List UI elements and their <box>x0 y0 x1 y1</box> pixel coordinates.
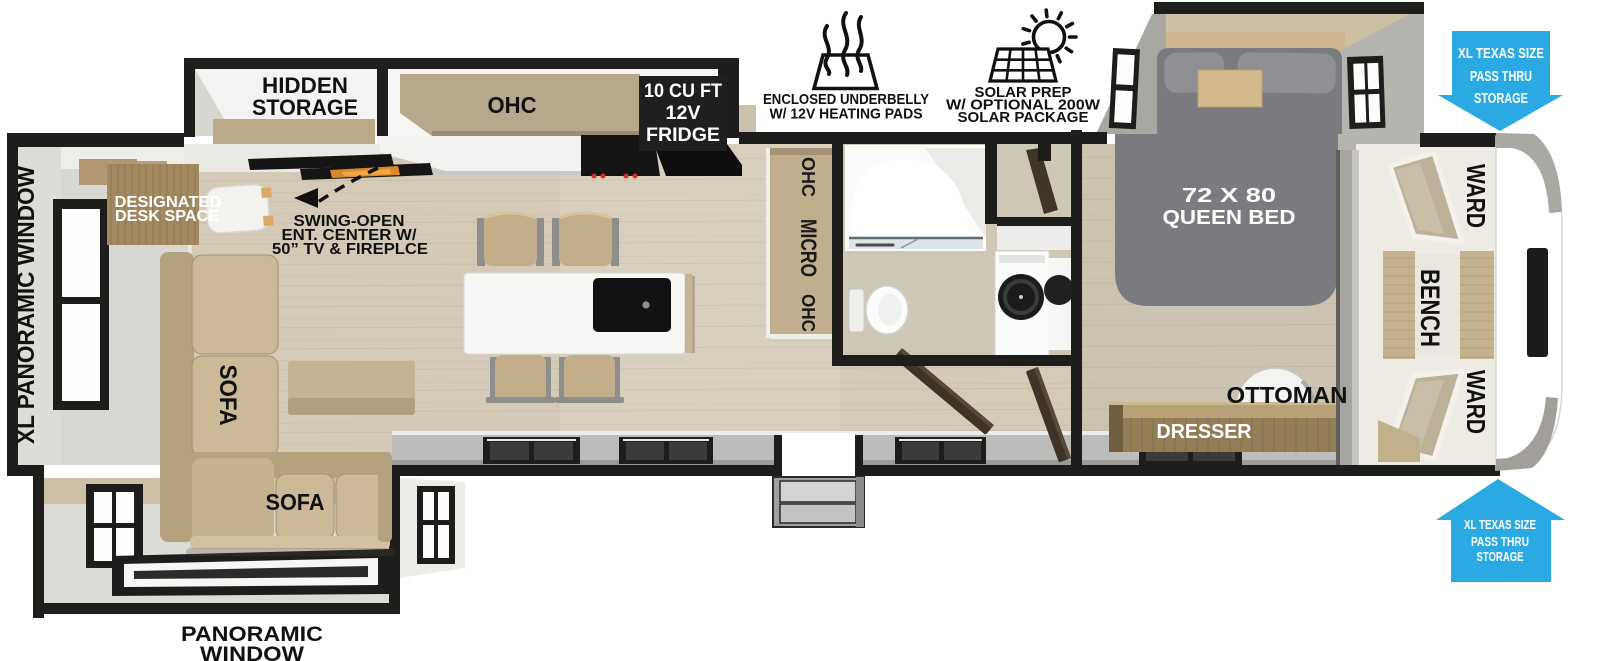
svg-text:PASS THRU: PASS THRU <box>1470 69 1532 85</box>
svg-text:WARD: WARD <box>1461 370 1491 434</box>
svg-text:DESK SPACE: DESK SPACE <box>115 208 219 225</box>
svg-text:XL TEXAS SIZE: XL TEXAS SIZE <box>1464 517 1536 532</box>
svg-text:PASS THRU: PASS THRU <box>1471 534 1529 549</box>
svg-text:XL PANORAMIC WINDOW: XL PANORAMIC WINDOW <box>13 166 40 444</box>
svg-text:WARD: WARD <box>1461 164 1491 228</box>
svg-text:STORAGE: STORAGE <box>1477 549 1524 564</box>
svg-text:SOLAR PACKAGE: SOLAR PACKAGE <box>958 109 1089 126</box>
svg-text:W/ 12V HEATING PADS: W/ 12V HEATING PADS <box>770 106 923 123</box>
svg-text:WINDOW: WINDOW <box>200 643 304 661</box>
svg-text:72 X 80: 72 X 80 <box>1182 185 1276 207</box>
svg-text:MICRO: MICRO <box>796 219 821 277</box>
svg-text:OHC: OHC <box>798 294 818 332</box>
svg-text:XL TEXAS SIZE: XL TEXAS SIZE <box>1458 46 1544 62</box>
svg-text:OHC: OHC <box>488 92 537 118</box>
svg-text:12V: 12V <box>666 103 701 124</box>
svg-text:QUEEN BED: QUEEN BED <box>1163 207 1296 229</box>
svg-text:50” TV & FIREPLCE: 50” TV & FIREPLCE <box>272 241 428 258</box>
svg-text:STORAGE: STORAGE <box>252 95 358 120</box>
svg-text:DRESSER: DRESSER <box>1157 421 1253 443</box>
svg-text:SOFA: SOFA <box>266 489 325 515</box>
svg-text:OHC: OHC <box>798 157 818 197</box>
svg-text:BENCH: BENCH <box>1415 269 1445 347</box>
svg-text:STORAGE: STORAGE <box>1474 91 1528 107</box>
svg-text:10 CU FT: 10 CU FT <box>644 81 722 102</box>
svg-text:OTTOMAN: OTTOMAN <box>1227 382 1348 408</box>
svg-text:SOFA: SOFA <box>214 365 241 426</box>
svg-text:FRIDGE: FRIDGE <box>646 125 720 146</box>
